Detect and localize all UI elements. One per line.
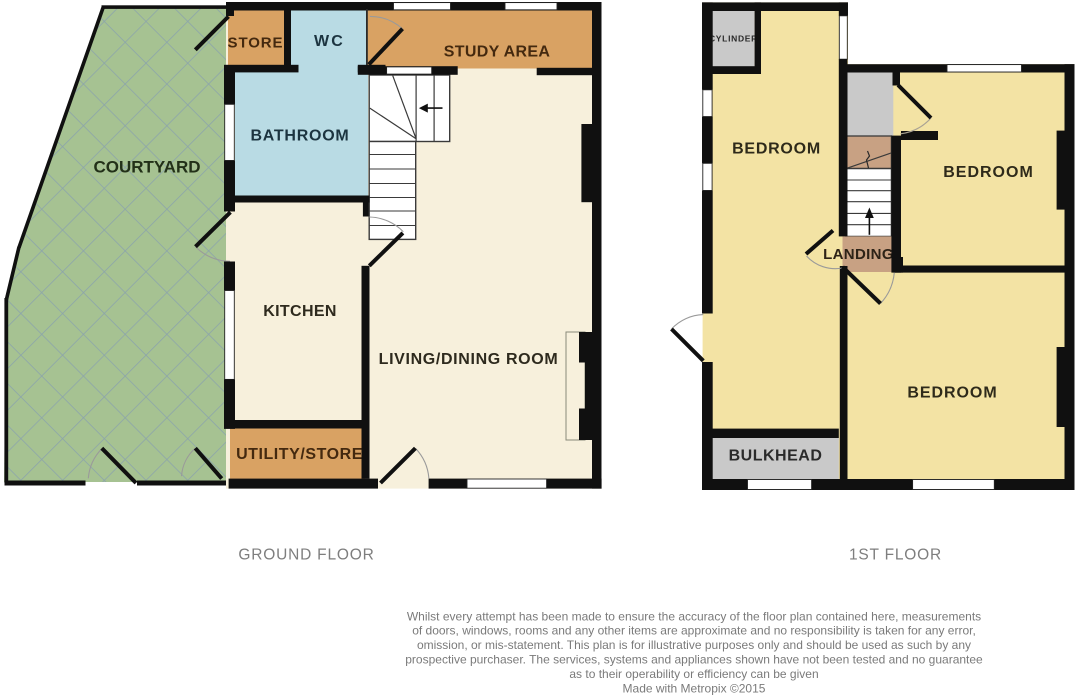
svg-text:LANDING: LANDING [823,246,894,263]
svg-text:as to their operability or eff: as to their operability or efficiency ca… [569,667,818,681]
svg-text:KITCHEN: KITCHEN [263,303,337,320]
svg-text:1ST FLOOR: 1ST FLOOR [849,547,942,564]
svg-text:BEDROOM: BEDROOM [943,164,1034,181]
svg-text:BATHROOM: BATHROOM [250,128,349,145]
svg-text:COURTYARD: COURTYARD [93,158,200,177]
svg-text:prospective purchaser. The ser: prospective purchaser. The services, sys… [405,653,983,667]
svg-text:STUDY AREA: STUDY AREA [444,44,551,61]
svg-text:WC: WC [314,33,345,50]
svg-text:omission, or mis-statement. Th: omission, or mis-statement. This plan is… [417,638,971,652]
svg-text:BEDROOM: BEDROOM [732,141,821,158]
svg-text:STORE: STORE [228,35,284,52]
svg-text:BULKHEAD: BULKHEAD [729,448,823,465]
svg-text:of doors, windows, rooms and a: of doors, windows, rooms and any other i… [412,624,976,638]
svg-text:BEDROOM: BEDROOM [907,385,997,402]
svg-text:UTILITY/STORE: UTILITY/STORE [236,446,363,463]
svg-text:Whilst every attempt has been: Whilst every attempt has been made to en… [407,609,981,623]
svg-text:Made with Metropix ©2015: Made with Metropix ©2015 [623,681,766,695]
svg-text:LIVING/DINING ROOM: LIVING/DINING ROOM [379,351,559,368]
svg-text:GROUND FLOOR: GROUND FLOOR [238,547,374,564]
svg-text:CYLINDER: CYLINDER [709,34,758,44]
